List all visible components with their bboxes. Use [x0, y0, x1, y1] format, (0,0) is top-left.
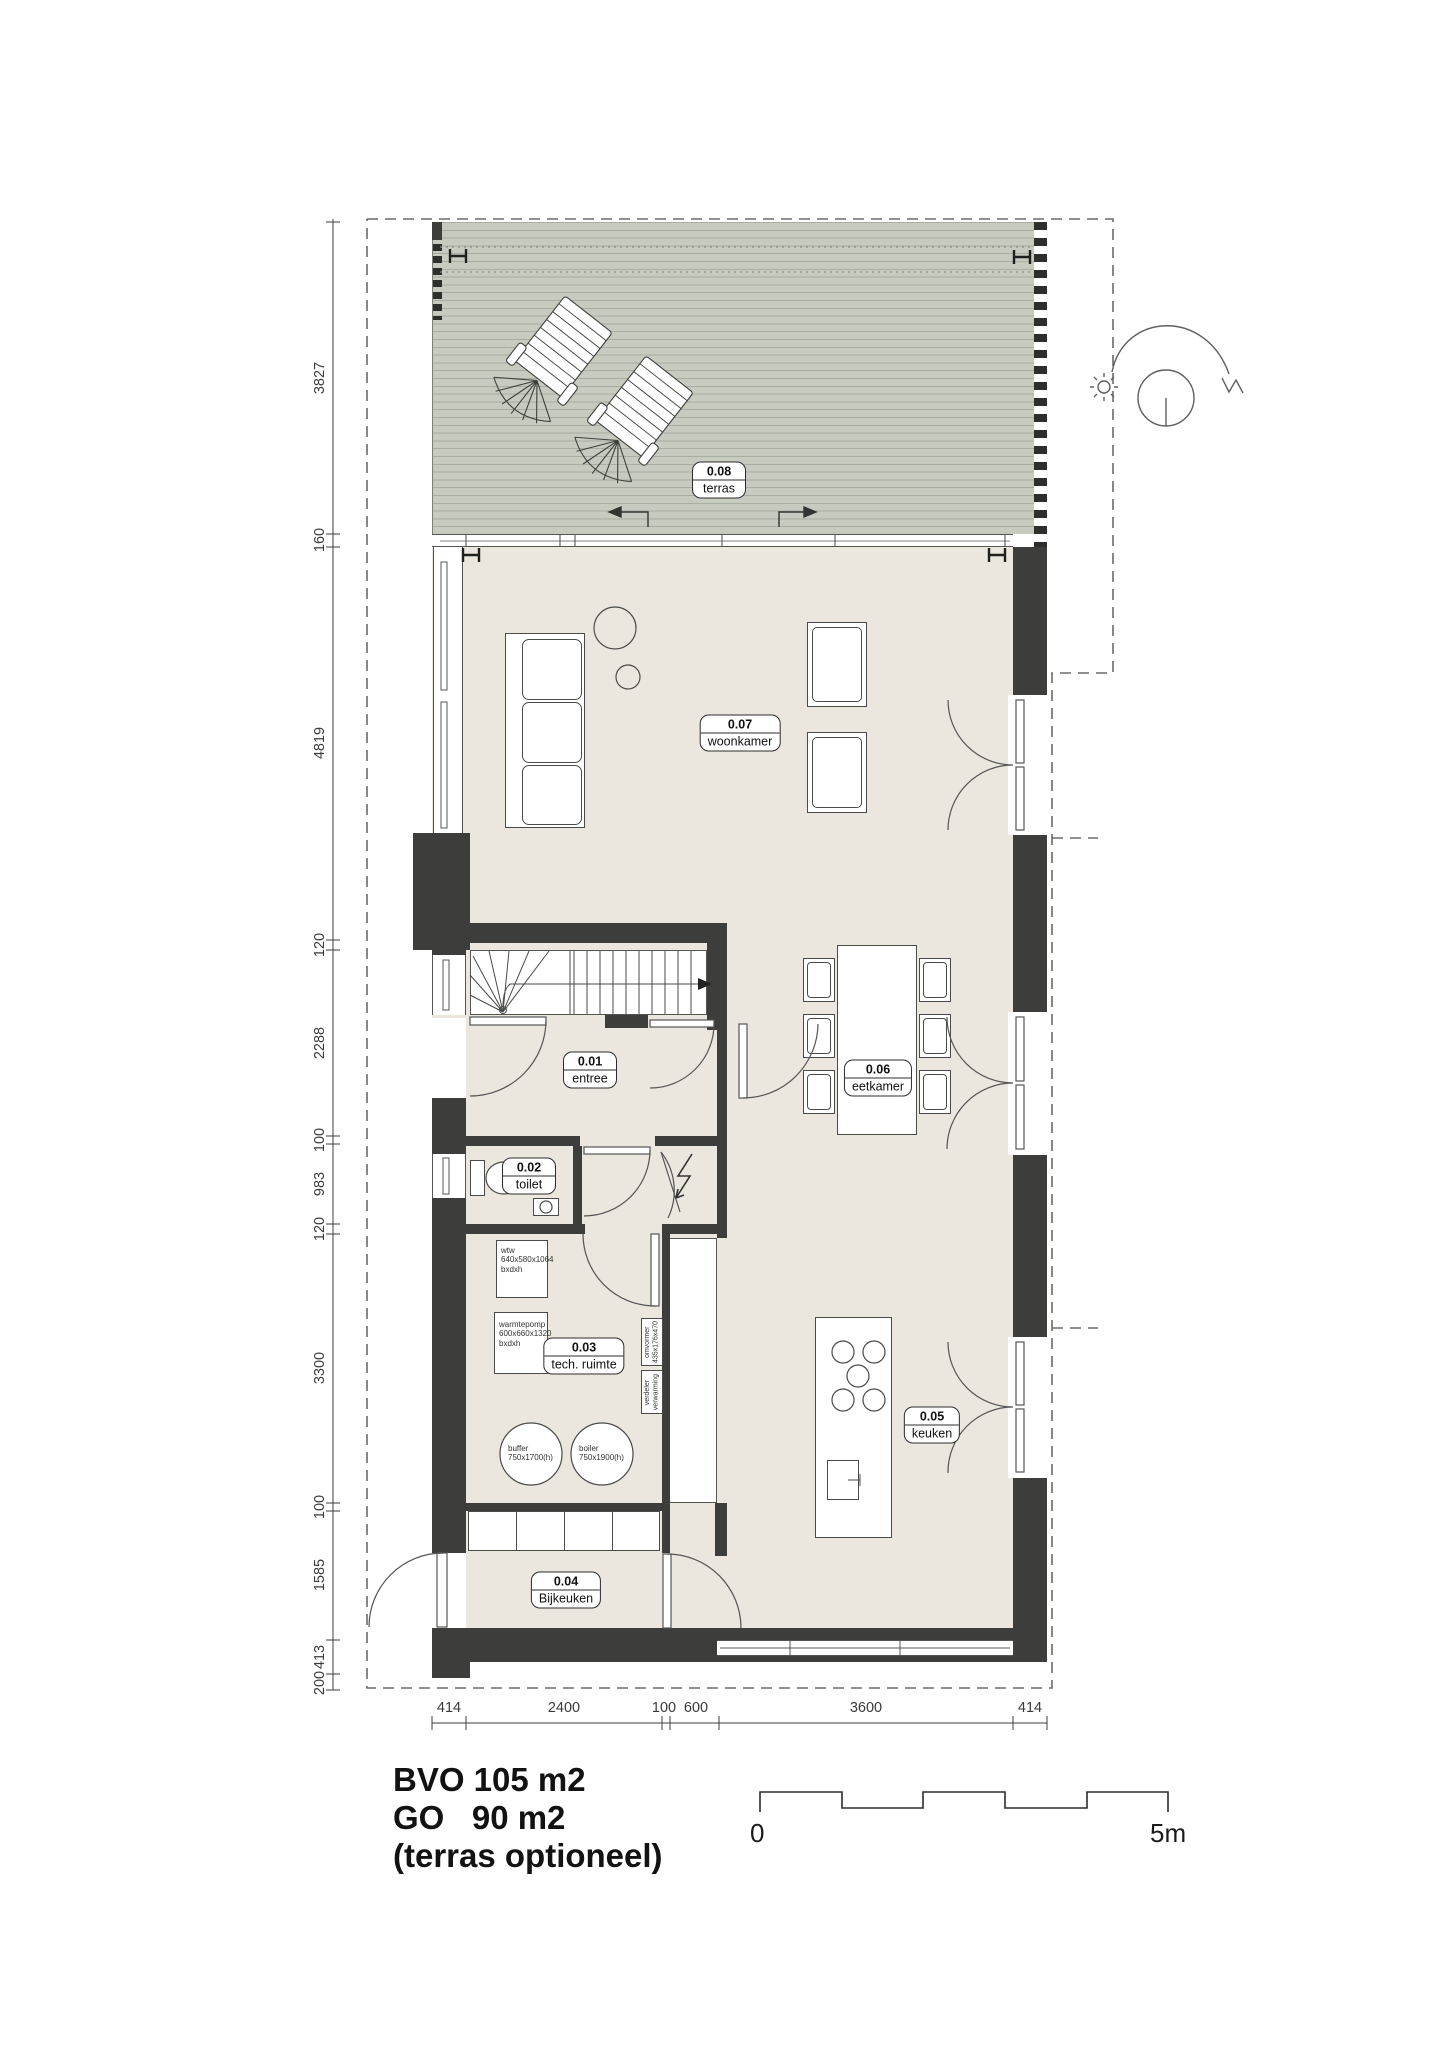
wall	[662, 1234, 670, 1553]
scale-start: 0	[750, 1818, 764, 1849]
exterior-wall	[1013, 547, 1047, 700]
room-number: 0.03	[544, 1339, 623, 1357]
exterior-wall	[432, 1198, 466, 1553]
dim-left-12: 200	[312, 1671, 328, 1695]
room-name: toilet	[503, 1177, 555, 1194]
dim-left-6: 983	[312, 1172, 328, 1196]
heating-manifold-label: verdelerverwarming	[641, 1370, 663, 1414]
scale-bar	[760, 1792, 1168, 1812]
exterior-wall	[432, 1098, 466, 1154]
toilet-sink	[533, 1198, 559, 1216]
front-door-opening	[432, 1018, 466, 1098]
buffer-label: buffer750x1700(h)	[508, 1444, 553, 1463]
room-number: 0.08	[693, 463, 745, 481]
french-door-opening-living	[1008, 695, 1047, 835]
french-door-opening-dining	[1008, 1012, 1047, 1155]
cabinet-divider	[564, 1511, 565, 1551]
wall	[717, 1030, 727, 1238]
wall	[655, 1136, 719, 1146]
armchair	[807, 732, 867, 813]
exterior-wall	[1013, 1473, 1047, 1662]
dim-left-1: 160	[312, 528, 328, 552]
terrace-note: (terras optioneel)	[393, 1838, 663, 1874]
wall	[707, 943, 727, 1030]
dim-left-10: 1585	[312, 1559, 328, 1591]
dim-bottom-3: 600	[684, 1700, 708, 1716]
exterior-wall	[1013, 830, 1047, 1017]
dining-chair	[919, 1070, 951, 1114]
window-entry-sidelight	[432, 955, 466, 1015]
window-west-living	[433, 547, 463, 833]
room-name: entree	[564, 1071, 616, 1088]
armchair-cushion	[812, 737, 862, 808]
exterior-wall	[1013, 1150, 1047, 1342]
wall	[466, 1503, 662, 1511]
room-number: 0.07	[701, 716, 780, 734]
dim-bottom-2: 100	[652, 1700, 676, 1716]
boiler-label: boiler750x1900(h)	[579, 1444, 624, 1463]
room-number: 0.04	[532, 1573, 600, 1591]
dim-left-11: 413	[312, 1645, 328, 1669]
scale-end: 5m	[1150, 1818, 1186, 1849]
armchair-cushion	[812, 627, 862, 702]
area-bvo: BVO 105 m2	[393, 1762, 586, 1798]
party-wall-hatch	[1034, 222, 1047, 547]
dining-chair	[803, 958, 835, 1002]
sun-orientation-icon	[1090, 326, 1243, 426]
area-go: GO 90 m2	[393, 1800, 565, 1836]
dim-left-9: 100	[312, 1495, 328, 1519]
inverter-label: omvormer435x176x470	[641, 1318, 663, 1366]
facade-glazing	[432, 534, 1013, 547]
exterior-wall	[432, 940, 466, 955]
armchair	[807, 622, 867, 707]
window-toilet	[432, 1154, 466, 1198]
sofa-cushion	[522, 765, 582, 825]
room-number: 0.05	[905, 1408, 959, 1426]
wall	[605, 1015, 648, 1028]
sofa-cushion	[522, 702, 582, 763]
sofa-cushion	[522, 639, 582, 700]
dim-left-2: 4819	[312, 727, 328, 759]
french-door-opening-kitchen	[1008, 1337, 1047, 1478]
dim-bottom-5: 414	[1018, 1700, 1042, 1716]
wall	[715, 1503, 727, 1556]
porch-step	[432, 1662, 470, 1678]
dining-chair	[919, 1014, 951, 1058]
wall	[466, 1224, 585, 1234]
dim-left-0: 3827	[312, 362, 328, 394]
dining-chair	[803, 1070, 835, 1114]
built-in-closet	[668, 1238, 717, 1503]
dim-left-8: 3300	[312, 1352, 328, 1384]
room-name: terras	[693, 481, 745, 498]
party-wall-hatch	[433, 244, 442, 320]
floorplan-canvas: 0.08 terras 0.07 woonkamer 0.01 entree 0…	[0, 0, 1447, 2048]
room-number: 0.06	[845, 1061, 911, 1079]
kitchen-island	[815, 1317, 892, 1538]
wall	[432, 222, 442, 240]
dim-bottom-0: 414	[437, 1700, 461, 1716]
dining-chair	[919, 958, 951, 1002]
room-label-terras: 0.08 terras	[692, 462, 746, 499]
dim-left-4: 2288	[312, 1027, 328, 1059]
room-label-keuken: 0.05 keuken	[904, 1407, 960, 1444]
room-number: 0.01	[564, 1053, 616, 1071]
dining-chair	[803, 1014, 835, 1058]
room-name: woonkamer	[701, 734, 780, 751]
room-number: 0.02	[503, 1159, 555, 1177]
room-label-toilet: 0.02 toilet	[502, 1158, 556, 1195]
window-kitchen-south	[717, 1640, 1013, 1656]
room-name: eetkamer	[845, 1079, 911, 1096]
room-name: tech. ruimte	[544, 1357, 623, 1374]
wall	[466, 1136, 580, 1146]
dim-left-7: 120	[312, 1217, 328, 1241]
dim-left-5: 100	[312, 1128, 328, 1152]
room-label-woonkamer: 0.07 woonkamer	[700, 715, 781, 752]
wtw-label: wtw640x580x1064bxdxh	[501, 1246, 554, 1274]
cabinet-divider	[612, 1511, 613, 1551]
dim-bottom-1: 2400	[548, 1700, 580, 1716]
room-label-eetkamer: 0.06 eetkamer	[844, 1060, 912, 1097]
dining-table	[837, 945, 917, 1135]
utility-door-opening	[432, 1553, 466, 1628]
room-label-bijkeuken: 0.04 Bijkeuken	[531, 1572, 601, 1609]
dim-left-3: 120	[312, 933, 328, 957]
room-name: keuken	[905, 1426, 959, 1443]
kitchen-sink	[827, 1460, 859, 1500]
cabinet-divider	[516, 1511, 517, 1551]
dim-bottom-4: 3600	[850, 1700, 882, 1716]
wall	[662, 1224, 719, 1234]
wc-cistern	[470, 1160, 485, 1196]
wall	[573, 1146, 582, 1224]
room-name: Bijkeuken	[532, 1591, 600, 1608]
staircase	[470, 950, 707, 1015]
room-label-tech-ruimte: 0.03 tech. ruimte	[543, 1338, 624, 1375]
room-label-entree: 0.01 entree	[563, 1052, 617, 1089]
